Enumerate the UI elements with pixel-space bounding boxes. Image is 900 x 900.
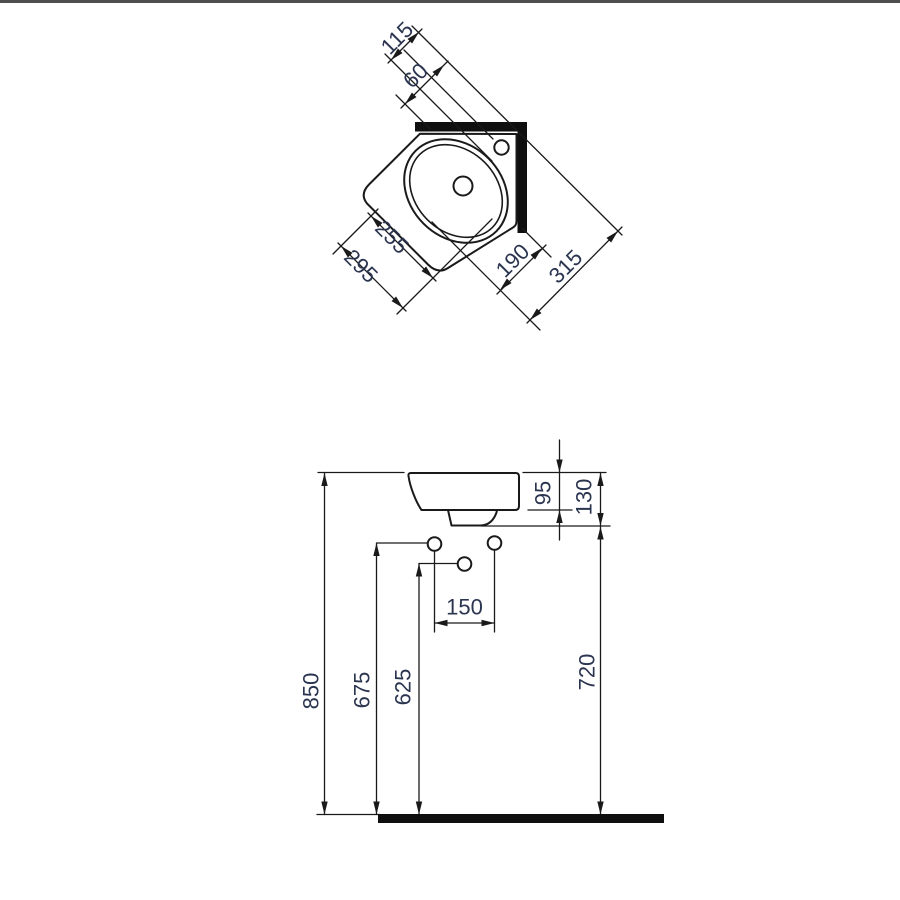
extension-line-body-edge	[396, 95, 430, 129]
tap-hole	[494, 140, 508, 154]
dim-190-label: 190	[491, 239, 535, 283]
dim-675-label: 675	[350, 672, 375, 709]
extension-line-front-corner	[397, 219, 492, 314]
basin-front-outline	[408, 473, 519, 510]
floor-bar	[378, 814, 664, 823]
arrowhead	[373, 543, 379, 556]
dim-625-label: 625	[391, 669, 416, 706]
dim-720-label: 720	[575, 654, 600, 691]
arrowhead	[597, 527, 603, 540]
arrowhead	[321, 473, 327, 486]
arrowhead	[597, 802, 603, 815]
arrowhead	[416, 564, 422, 577]
arrowhead	[373, 802, 379, 815]
top-view: 115 60 255 295 190 315	[333, 17, 622, 330]
technical-drawing: 115 60 255 295 190 315	[0, 0, 900, 900]
front-view: 95 130 150 850 675 625 720	[299, 440, 665, 823]
arrowhead	[597, 513, 603, 526]
dim-850-label: 850	[299, 673, 324, 710]
arrowhead	[416, 802, 422, 815]
arrowhead	[556, 510, 562, 523]
drain-hole	[454, 177, 473, 196]
dim-315-label: 315	[544, 245, 588, 289]
drawing-sheet: 115 60 255 295 190 315	[0, 0, 900, 900]
dim-60-label: 60	[398, 58, 433, 93]
arrowhead	[435, 620, 448, 626]
drain-outlet-hole	[458, 557, 472, 571]
mounting-hole-right	[488, 536, 502, 550]
dim-115-label: 115	[376, 17, 418, 59]
dim-130-label: 130	[572, 479, 597, 516]
arrowhead	[482, 620, 495, 626]
arrowhead	[597, 473, 603, 486]
arrowhead	[321, 802, 327, 815]
basin-body-outline	[364, 134, 517, 271]
dim-95-label: 95	[531, 481, 556, 505]
dim-150-label: 150	[446, 595, 483, 620]
trap-cover-outline	[448, 510, 497, 526]
arrowhead	[556, 460, 562, 473]
mounting-hole-left	[428, 537, 442, 551]
